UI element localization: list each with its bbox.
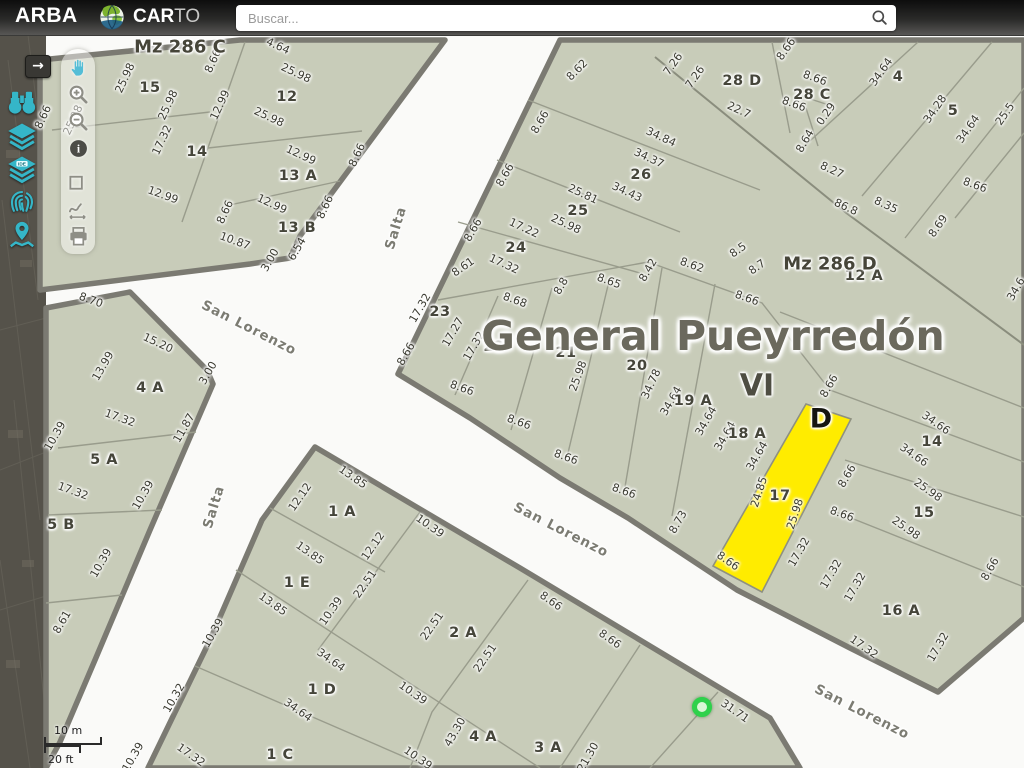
scale-bar: 10 m 20 ft — [28, 724, 118, 766]
print-icon[interactable] — [61, 223, 95, 250]
pan-hand-icon[interactable] — [61, 54, 95, 81]
map-pin-locate-icon[interactable] — [7, 220, 37, 250]
map-canvas[interactable]: 25.9825.9825.988.668.6617.3212.994.6425.… — [0, 0, 1024, 768]
carto-wordmark-light: TO — [174, 6, 200, 27]
layers-icon[interactable] — [7, 121, 37, 151]
binoculars-search-icon[interactable] — [7, 88, 37, 118]
arba-logo[interactable]: ARBA — [15, 4, 78, 28]
layers-ide-icon[interactable]: IDE — [7, 154, 37, 184]
arba-carto-app: 25.9825.9825.988.668.6617.3212.994.6425.… — [0, 0, 1024, 768]
scale-imperial-bar — [44, 745, 81, 753]
carto-globe-icon — [98, 3, 126, 31]
map-toolbar: i — [61, 49, 95, 254]
carto-logo[interactable]: CARTO — [98, 3, 200, 31]
scale-imperial-label: 20 ft — [48, 753, 118, 766]
svg-text:IDE: IDE — [18, 162, 26, 168]
info-icon[interactable]: i — [61, 135, 95, 162]
carto-wordmark-bold: CAR — [133, 6, 174, 27]
search-bar — [236, 5, 896, 31]
map-geometry — [0, 0, 1024, 768]
zoom-out-icon[interactable] — [61, 108, 95, 135]
map-point-marker[interactable] — [692, 697, 712, 717]
measure-area-icon[interactable] — [61, 169, 95, 196]
magnifier-icon[interactable] — [870, 8, 890, 28]
measure-path-icon[interactable] — [61, 196, 95, 223]
zoom-in-icon[interactable] — [61, 81, 95, 108]
sidebar-expand-button[interactable]: → — [25, 55, 51, 78]
search-input[interactable] — [246, 6, 850, 30]
top-bar: ARBA CARTO — [0, 0, 1024, 36]
scale-metric-bar — [44, 737, 102, 745]
fingerprint-icon[interactable] — [7, 187, 37, 217]
arrow-right-icon: → — [32, 58, 44, 74]
scale-metric-label: 10 m — [54, 724, 118, 737]
